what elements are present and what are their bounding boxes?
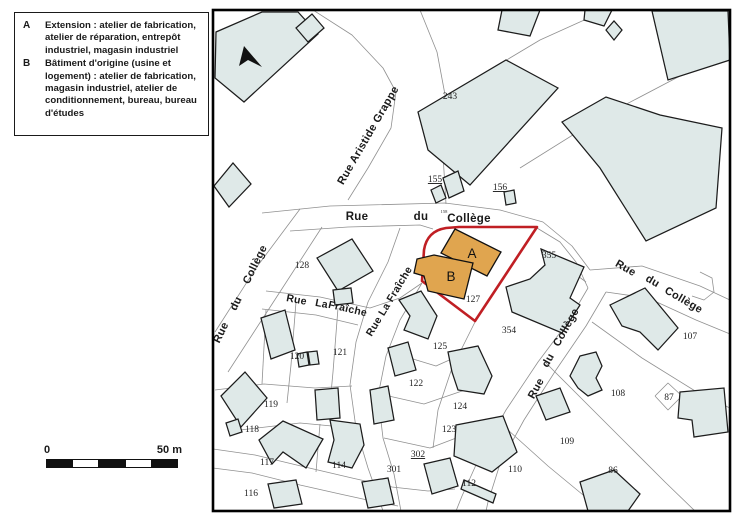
building (308, 351, 319, 365)
legend-box: A Extension : atelier de fabrication, at… (14, 12, 209, 136)
parcel-label: 116 (244, 489, 258, 499)
parcel-label: 117 (260, 458, 274, 468)
legend-text-b: Bâtiment d'origine (usine et logement) :… (45, 58, 202, 120)
street-label: Rue (346, 211, 369, 223)
parcel-label: 125 (433, 342, 448, 352)
parcel-label: 123 (442, 425, 457, 435)
parcel-label: 87 (664, 393, 674, 403)
scale-end-label: 50 m (157, 444, 182, 456)
parcel-label: 122 (409, 379, 424, 389)
parcel-label: 119 (264, 400, 278, 410)
map-content: ABRue Aristide GrappeRueduCollègeRueduCo… (211, 10, 730, 511)
parcel-label: 128 (295, 261, 310, 271)
scale-bar-graphic (46, 459, 178, 468)
street-label: Collège (447, 213, 491, 225)
parcel-label: 355 (542, 251, 557, 261)
parcel-label: 354 (502, 326, 517, 336)
scale-segment (126, 460, 152, 467)
parcel-label: 118 (245, 425, 259, 435)
parcel-label: 156 (493, 183, 508, 193)
street-label: du (414, 211, 429, 223)
scale-segment (47, 460, 73, 467)
parcel-label: 112 (462, 479, 476, 489)
legend-key-a: A (23, 20, 45, 32)
scale-start-label: 0 (44, 444, 50, 456)
building (315, 388, 340, 420)
parcel-label: 108 (611, 389, 626, 399)
parcel-label: 155 (428, 175, 443, 185)
scale-segment (152, 460, 177, 467)
parcel-label: 158 (441, 209, 449, 214)
parcel-label: 121 (333, 348, 348, 358)
parcel-label: 243 (443, 92, 458, 102)
scale-segment (99, 460, 125, 467)
parcel-label: 120 (290, 352, 305, 362)
scale-bar-labels: 0 50 m (42, 444, 182, 456)
parcel-label: 124 (453, 402, 468, 412)
parcel-label: 301 (387, 465, 402, 475)
parcel-label: 127 (466, 295, 481, 305)
legend-item-a: A Extension : atelier de fabrication, at… (23, 20, 202, 57)
parcel-label: 107 (683, 332, 698, 342)
building (362, 478, 394, 508)
parcel-label: 86 (608, 466, 618, 476)
scale-bar: 0 50 m (42, 444, 182, 468)
parcel-label: 302 (411, 450, 426, 460)
legend-key-b: B (23, 58, 45, 70)
parcel-label: 110 (508, 465, 522, 475)
parcel-label: 109 (560, 437, 575, 447)
building-label-b: B (446, 269, 455, 284)
parcel-label: 114 (332, 461, 346, 471)
building-label-a: A (467, 246, 476, 261)
scale-segment (73, 460, 99, 467)
legend-item-b: B Bâtiment d'origine (usine et logement)… (23, 58, 202, 120)
building (268, 480, 302, 508)
map-figure: ABRue Aristide GrappeRueduCollègeRueduCo… (0, 0, 738, 522)
legend-text-a: Extension : atelier de fabrication, atel… (45, 20, 202, 57)
